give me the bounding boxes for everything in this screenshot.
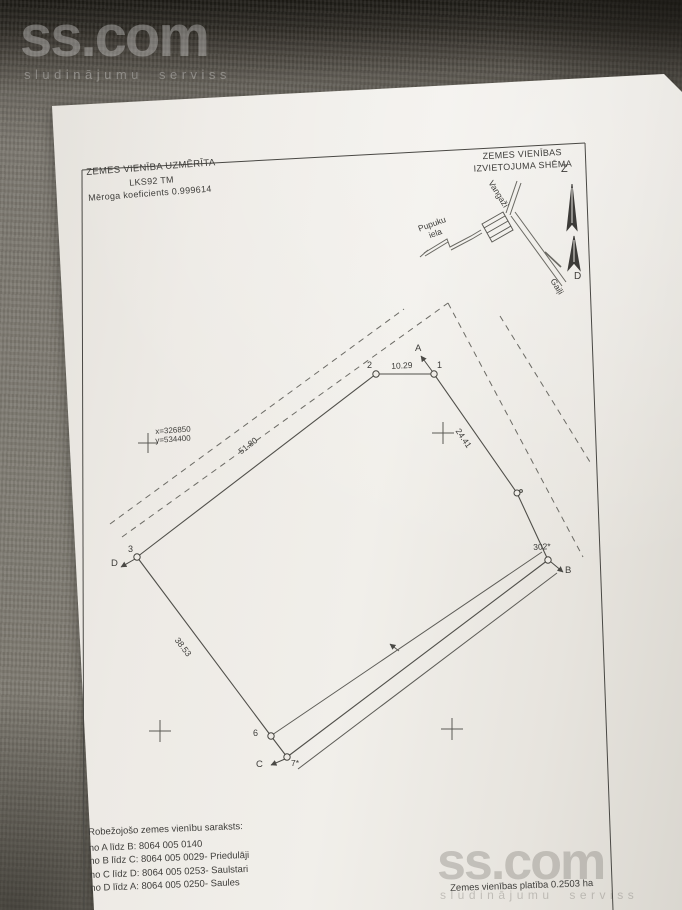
corner-d-label: D xyxy=(111,559,118,570)
schema-parcel-hatch xyxy=(482,212,513,242)
corner-c-label: C xyxy=(256,760,263,771)
grid-crosses xyxy=(138,422,463,742)
distance-2-1: 10.29 xyxy=(391,361,413,372)
photo-scene: ss.com sludinājumu serviss xyxy=(0,0,682,910)
south-label: D xyxy=(574,271,581,283)
point-6-label: 6 xyxy=(253,728,258,738)
drawing-frame xyxy=(82,143,613,910)
point-7-label: 7* xyxy=(291,759,299,769)
point-302-label: 302* xyxy=(533,542,551,553)
boundary-point-markers xyxy=(134,371,551,760)
point-3-label: 3 xyxy=(128,544,133,554)
north-label: Z xyxy=(561,163,568,176)
point-2-label: 2 xyxy=(367,360,372,370)
corner-b-label: B xyxy=(565,566,571,577)
north-arrow-icon xyxy=(567,184,580,270)
corner-arrows xyxy=(121,356,563,765)
parcel-boundary xyxy=(137,374,548,757)
corner-a-label: A xyxy=(415,344,421,355)
point-1-label: 1 xyxy=(437,360,442,370)
survey-drawing xyxy=(0,0,682,910)
boundary-list: Robežojošo zemes vienību saraksts: no A … xyxy=(88,822,251,895)
